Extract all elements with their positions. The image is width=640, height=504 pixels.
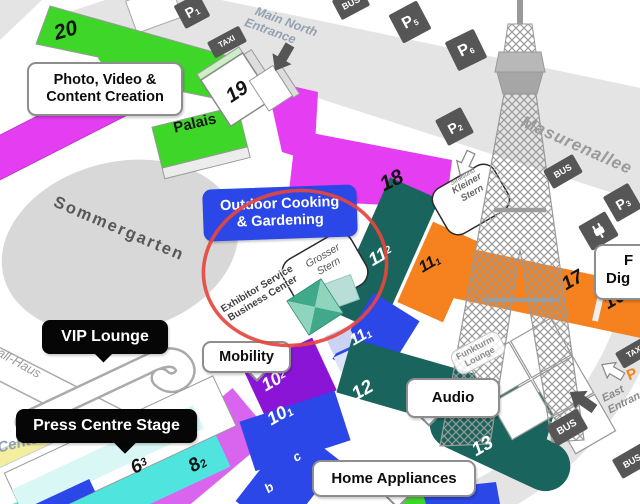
exhibition-map: Main North Entrance Masurenallee East En…: [0, 0, 640, 504]
fitness-digital-label[interactable]: F Dig: [594, 244, 640, 300]
plug-glyph: [587, 220, 609, 243]
road-corner-northwest: [0, 0, 42, 40]
vip-lounge-label[interactable]: VIP Lounge: [42, 320, 168, 354]
outdoor-cooking-label[interactable]: Outdoor Cooking& Gardening: [202, 184, 358, 241]
audio-label[interactable]: Audio: [406, 378, 500, 418]
photo-video-label[interactable]: Photo, Video &Content Creation: [27, 62, 183, 116]
home-appliances-label[interactable]: Home Appliances: [312, 460, 476, 497]
press-centre-stage-label[interactable]: Press Centre Stage: [16, 409, 197, 443]
mobility-label[interactable]: Mobility: [202, 341, 291, 373]
